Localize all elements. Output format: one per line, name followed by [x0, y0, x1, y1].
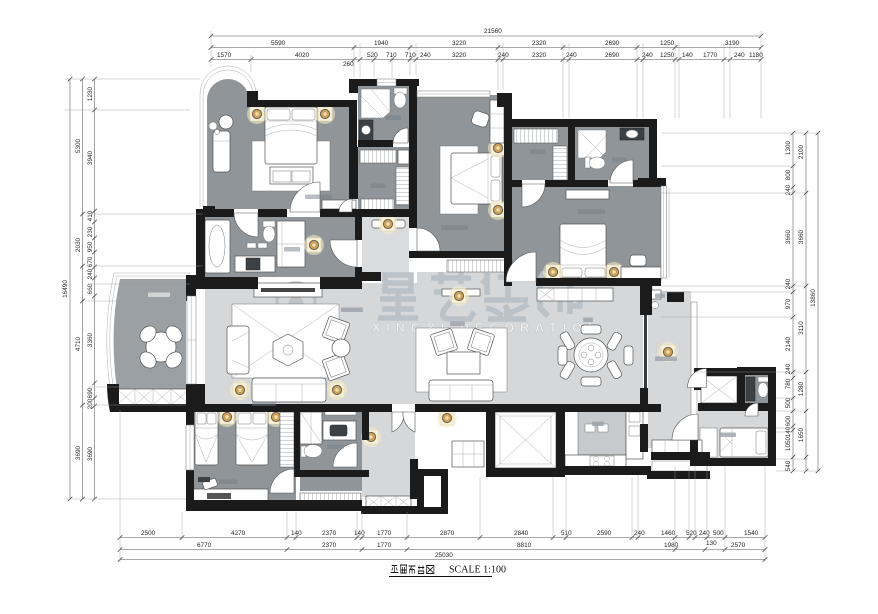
svg-text:140: 140 [291, 530, 302, 537]
svg-text:1650: 1650 [798, 427, 805, 442]
svg-text:5300: 5300 [75, 138, 82, 153]
svg-text:4710: 4710 [75, 336, 82, 351]
svg-text:710: 710 [405, 52, 416, 59]
svg-text:690: 690 [87, 387, 94, 398]
svg-text:4020: 4020 [295, 52, 310, 59]
svg-text:2870: 2870 [440, 530, 455, 537]
svg-text:240: 240 [642, 52, 653, 59]
svg-text:500: 500 [785, 397, 792, 408]
svg-text:2320: 2320 [532, 40, 547, 47]
svg-text:2100: 2100 [798, 144, 805, 159]
svg-text:710: 710 [386, 52, 397, 59]
svg-text:21560: 21560 [484, 28, 502, 35]
svg-text:1280: 1280 [798, 381, 805, 396]
svg-text:3220: 3220 [452, 40, 467, 47]
svg-text:1050: 1050 [785, 436, 792, 451]
svg-text:240: 240 [785, 363, 792, 374]
svg-text:3690: 3690 [87, 446, 94, 461]
svg-text:3110: 3110 [798, 321, 805, 335]
svg-text:510: 510 [561, 530, 572, 537]
svg-text:600: 600 [785, 415, 792, 426]
svg-text:240: 240 [420, 52, 431, 59]
svg-text:500: 500 [713, 530, 724, 537]
svg-text:130: 130 [706, 540, 717, 547]
svg-text:8810: 8810 [517, 542, 532, 549]
svg-text:25030: 25030 [435, 552, 453, 559]
svg-text:240: 240 [785, 184, 792, 195]
svg-text:4270: 4270 [231, 530, 246, 537]
svg-text:1540: 1540 [744, 530, 759, 537]
svg-text:SCALE 1:100: SCALE 1:100 [449, 565, 506, 576]
svg-text:3190: 3190 [725, 40, 740, 47]
svg-text:800: 800 [785, 169, 792, 180]
svg-text:670: 670 [87, 256, 94, 267]
svg-text:240: 240 [566, 52, 577, 59]
svg-text:2140: 2140 [785, 336, 792, 351]
svg-text:1230: 1230 [87, 86, 94, 101]
svg-text:950: 950 [87, 241, 94, 252]
svg-text:240: 240 [734, 52, 745, 59]
svg-text:2690: 2690 [605, 52, 620, 59]
svg-text:13860: 13860 [810, 289, 817, 307]
svg-text:230: 230 [87, 226, 94, 237]
svg-text:1250: 1250 [660, 40, 675, 47]
svg-text:520: 520 [686, 530, 697, 537]
svg-text:3220: 3220 [452, 52, 467, 59]
svg-text:5590: 5590 [271, 40, 286, 47]
svg-text:1570: 1570 [217, 52, 232, 59]
svg-text:2370: 2370 [322, 542, 337, 549]
svg-text:3940: 3940 [87, 150, 94, 165]
svg-text:1250: 1250 [660, 52, 675, 59]
svg-text:2370: 2370 [322, 530, 337, 537]
svg-text:1300: 1300 [785, 140, 792, 155]
svg-text:260: 260 [343, 61, 354, 68]
svg-text:140: 140 [682, 52, 693, 59]
svg-text:2590: 2590 [597, 530, 612, 537]
svg-text:3690: 3690 [75, 445, 82, 460]
svg-text:540: 540 [785, 460, 792, 471]
svg-text:1940: 1940 [374, 40, 389, 47]
svg-text:1770: 1770 [377, 530, 392, 537]
svg-text:3660: 3660 [785, 229, 792, 244]
svg-text:660: 660 [87, 283, 94, 294]
svg-text:2030: 2030 [75, 237, 82, 252]
svg-text:410: 410 [87, 210, 94, 221]
svg-text:3360: 3360 [87, 332, 94, 347]
svg-text:2500: 2500 [141, 530, 156, 537]
svg-text:2690: 2690 [605, 40, 620, 47]
svg-text:2840: 2840 [514, 530, 529, 537]
svg-text:520: 520 [367, 52, 378, 59]
svg-text:1770: 1770 [703, 52, 718, 59]
svg-text:16490: 16490 [62, 280, 69, 298]
svg-text:2570: 2570 [731, 542, 746, 549]
svg-text:240: 240 [87, 268, 94, 279]
svg-text:6770: 6770 [197, 542, 212, 549]
svg-text:1770: 1770 [377, 542, 392, 549]
svg-text:2320: 2320 [532, 52, 547, 59]
svg-text:3660: 3660 [798, 229, 805, 244]
svg-text:1460: 1460 [661, 530, 676, 537]
svg-text:970: 970 [785, 298, 792, 309]
